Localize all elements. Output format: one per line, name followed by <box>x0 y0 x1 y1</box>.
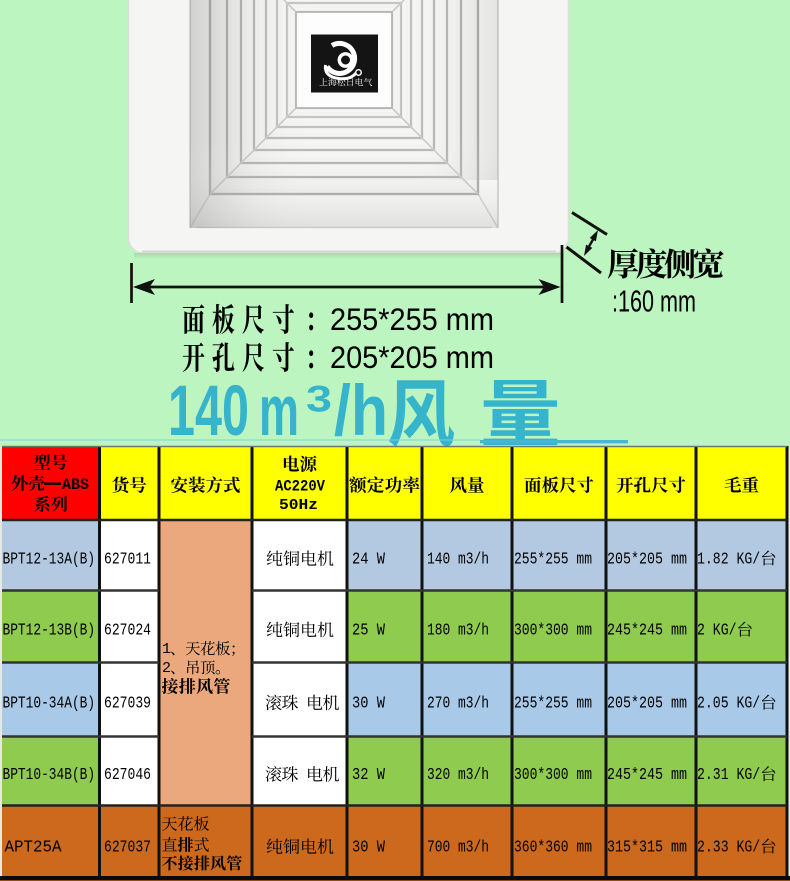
svg-text:3: 3 <box>306 379 332 420</box>
svg-text:25 W: 25 W <box>352 621 385 640</box>
svg-text:627011: 627011 <box>104 549 151 568</box>
svg-text:627046: 627046 <box>104 765 151 784</box>
svg-text:300*300 mm: 300*300 mm <box>514 765 592 784</box>
svg-text:2: 2 <box>162 660 171 677</box>
svg-text:360*360 mm: 360*360 mm <box>514 837 592 856</box>
svg-text:30 W: 30 W <box>352 694 385 713</box>
svg-text:140 m3/h: 140 m3/h <box>427 549 489 568</box>
svg-text:245*245 mm: 245*245 mm <box>607 765 687 784</box>
svg-text:24 W: 24 W <box>352 549 385 568</box>
svg-text:627024: 627024 <box>104 621 151 640</box>
svg-text:180 m3/h: 180 m3/h <box>427 621 489 640</box>
svg-text:315*315 mm: 315*315 mm <box>607 837 687 856</box>
svg-text:ABS: ABS <box>62 476 89 494</box>
svg-text:BPT10-34B(B): BPT10-34B(B) <box>3 765 96 784</box>
svg-text:245*245 mm: 245*245 mm <box>607 621 687 640</box>
svg-text:255*255 mm: 255*255 mm <box>330 301 494 337</box>
svg-text:255*255 mm: 255*255 mm <box>514 549 592 568</box>
svg-text:320 m3/h: 320 m3/h <box>427 765 489 784</box>
svg-text:BPT12-13A(B): BPT12-13A(B) <box>3 549 96 568</box>
svg-text:32 W: 32 W <box>352 765 385 784</box>
svg-text:2.33 KG/: 2.33 KG/ <box>697 837 760 856</box>
svg-text::160 mm: :160 mm <box>612 285 696 319</box>
svg-text:APT25A: APT25A <box>5 837 62 856</box>
svg-text:1: 1 <box>162 641 171 658</box>
svg-text:300*300 mm: 300*300 mm <box>514 621 592 640</box>
svg-text:BPT10-34A(B): BPT10-34A(B) <box>3 694 96 713</box>
svg-text:627039: 627039 <box>104 694 151 713</box>
svg-text:50Hz: 50Hz <box>279 497 318 514</box>
svg-text:2 KG/: 2 KG/ <box>697 621 737 640</box>
svg-text:205*205 mm: 205*205 mm <box>607 549 687 568</box>
svg-text:255*255 mm: 255*255 mm <box>514 694 592 713</box>
svg-text:2.31 KG/: 2.31 KG/ <box>697 765 760 784</box>
svg-text:1.82 KG/: 1.82 KG/ <box>697 549 760 568</box>
svg-text:700 m3/h: 700 m3/h <box>427 837 489 856</box>
svg-text:627037: 627037 <box>104 837 151 856</box>
svg-text:205*205 mm: 205*205 mm <box>607 694 687 713</box>
svg-text:2.05 KG/: 2.05 KG/ <box>697 694 760 713</box>
svg-text:205*205 mm: 205*205 mm <box>330 339 494 375</box>
svg-text:BPT12-13B(B): BPT12-13B(B) <box>3 621 96 640</box>
svg-text:270 m3/h: 270 m3/h <box>427 694 489 713</box>
svg-text:AC220V: AC220V <box>275 478 326 496</box>
svg-text:30 W: 30 W <box>352 837 385 856</box>
